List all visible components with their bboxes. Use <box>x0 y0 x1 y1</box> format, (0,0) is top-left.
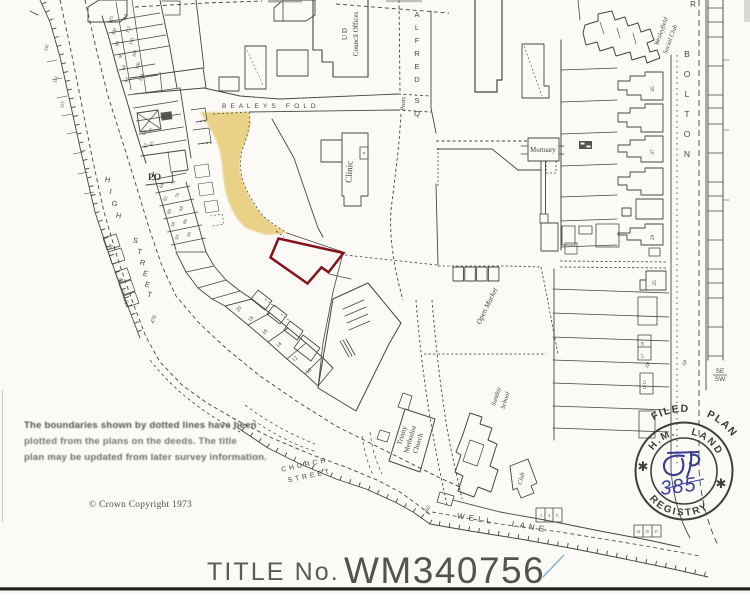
svg-text:L: L <box>415 23 419 32</box>
svg-text:R: R <box>414 49 420 58</box>
svg-text:plan may be updated from later: plan may be updated from later survey in… <box>24 452 267 463</box>
svg-text:Posts: Posts <box>400 96 408 112</box>
svg-text:45: 45 <box>650 86 656 92</box>
svg-text:A: A <box>414 10 419 19</box>
svg-text:The boundaries shown by dotted: The boundaries shown by dotted lines hav… <box>24 420 257 431</box>
svg-text:U D: U D <box>341 28 349 40</box>
svg-text:17: 17 <box>654 530 658 534</box>
svg-text:19: 19 <box>640 341 645 346</box>
svg-text:E: E <box>414 62 419 71</box>
svg-text:Mortuary: Mortuary <box>530 147 556 154</box>
svg-text:Q: Q <box>414 109 420 118</box>
svg-text:N: N <box>684 149 690 159</box>
svg-text:25: 25 <box>652 280 658 286</box>
svg-text:B E A L E Y S F O L D: B E A L E Y S F O L D <box>222 103 317 110</box>
svg-text:© Crown Copyright 1973: © Crown Copyright 1973 <box>89 499 192 510</box>
svg-text:Clinic: Clinic <box>343 161 354 183</box>
svg-text:R: R <box>690 0 696 9</box>
svg-text:O: O <box>684 129 691 139</box>
svg-text:B: B <box>684 49 690 59</box>
svg-text:D: D <box>414 75 420 84</box>
svg-text:SW: SW <box>715 376 726 383</box>
svg-text:T: T <box>684 109 689 119</box>
svg-text:15: 15 <box>645 530 649 534</box>
svg-text:Council Offices: Council Offices <box>352 12 360 57</box>
svg-text:13: 13 <box>636 530 640 534</box>
svg-text:11-15: 11-15 <box>642 380 647 389</box>
svg-text:PO: PO <box>148 173 161 183</box>
svg-text:37: 37 <box>650 149 656 155</box>
svg-text:S: S <box>414 96 419 105</box>
svg-text:L: L <box>685 89 690 99</box>
svg-text:29: 29 <box>650 235 656 241</box>
svg-text:SE: SE <box>716 368 725 375</box>
svg-text:385: 385 <box>659 474 698 500</box>
svg-text:WM340756: WM340756 <box>344 550 545 591</box>
svg-text:TITLE No.: TITLE No. <box>207 558 340 586</box>
svg-text:O: O <box>684 69 691 79</box>
svg-text:✱: ✱ <box>638 459 649 474</box>
svg-text:✱: ✱ <box>716 476 727 491</box>
svg-text:plotted from the plans on the: plotted from the plans on the deeds. The… <box>24 436 237 447</box>
svg-text:F: F <box>415 36 420 45</box>
svg-text:1: 1 <box>540 513 542 518</box>
svg-text:17: 17 <box>640 353 645 358</box>
